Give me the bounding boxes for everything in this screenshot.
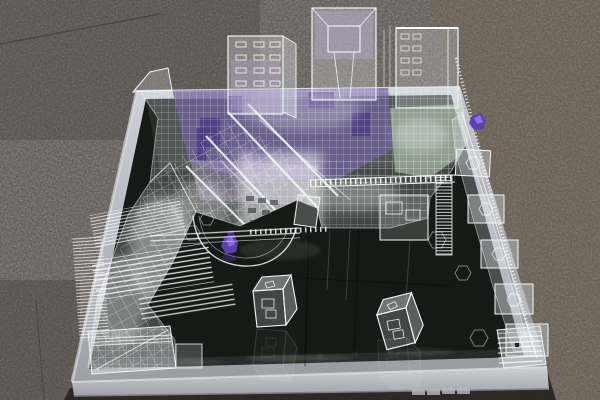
photo-scene [0, 0, 600, 400]
bottom-right-louvered-block [497, 326, 546, 368]
cube-reflection [253, 329, 297, 381]
tower-left [228, 36, 296, 118]
vertical-ladder-strip [436, 175, 452, 255]
floor-dark-patch-bottomleft [0, 280, 80, 400]
block-dark-dot [515, 343, 519, 347]
tower-center [312, 8, 376, 100]
